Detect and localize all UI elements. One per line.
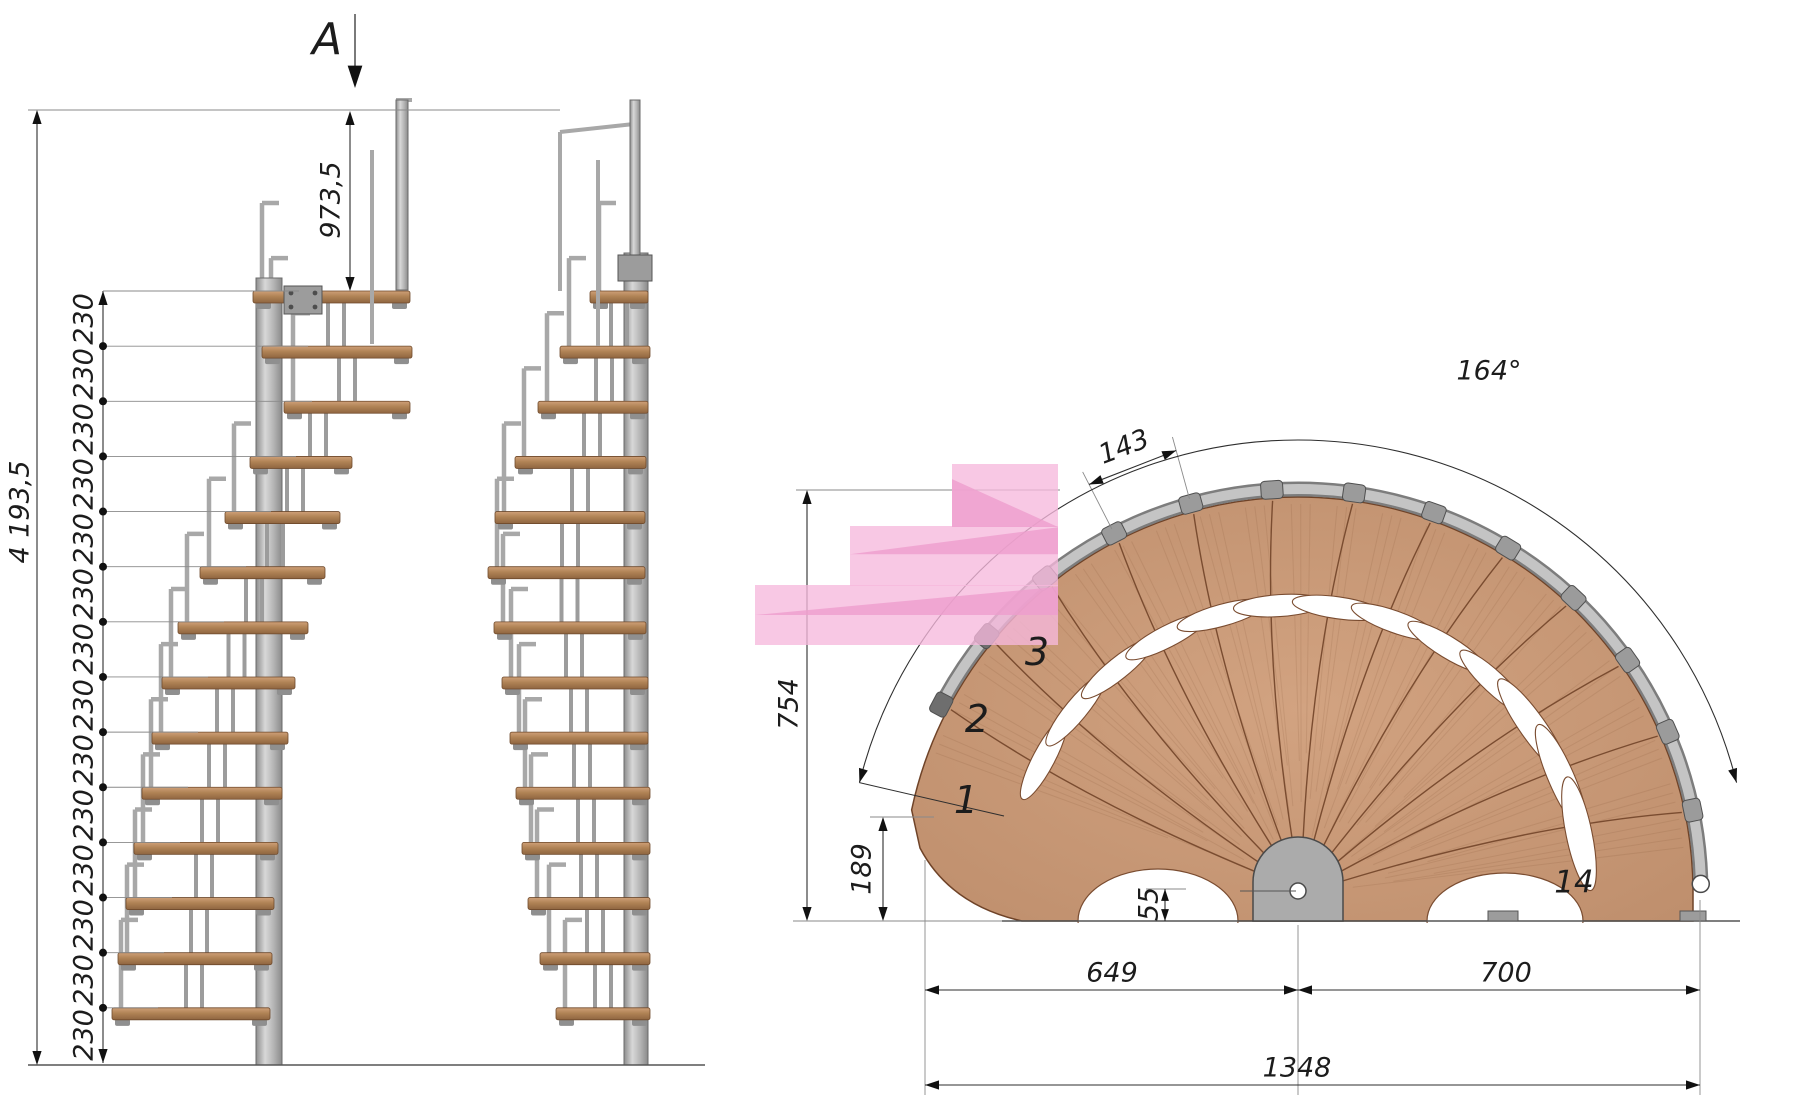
side-elevation-view — [488, 100, 652, 1065]
plan-view-fan — [912, 480, 1745, 1008]
staircase-technical-drawing — [0, 0, 1800, 1113]
front-elevation-view — [112, 100, 412, 1065]
